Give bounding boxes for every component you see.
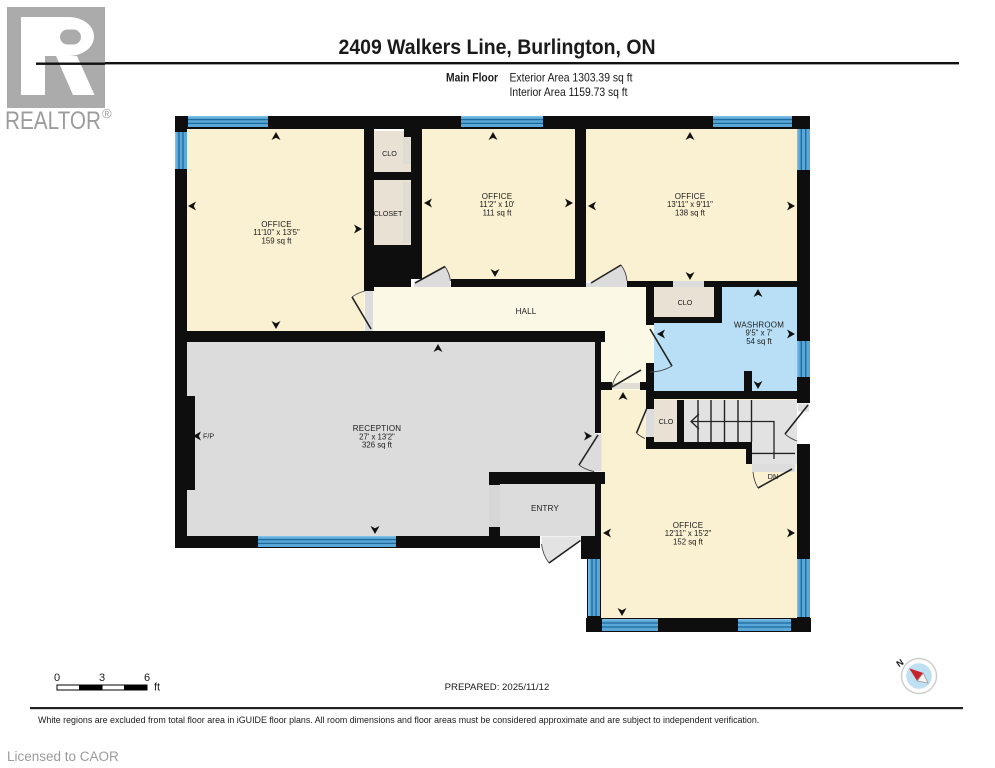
- svg-text:3: 3: [99, 672, 105, 684]
- svg-text:Exterior Area 1303.39 sq ft: Exterior Area 1303.39 sq ft: [510, 72, 634, 85]
- svg-text:Interior Area 1159.73 sq ft: Interior Area 1159.73 sq ft: [510, 86, 629, 99]
- svg-text:2409 Walkers Line, Burlington,: 2409 Walkers Line, Burlington, ON: [339, 36, 656, 59]
- svg-text:PREPARED: 2025/11/12: PREPARED: 2025/11/12: [445, 682, 550, 693]
- svg-text:HALL: HALL: [516, 307, 537, 316]
- svg-text:F/P: F/P: [203, 432, 214, 441]
- svg-text:ENTRY: ENTRY: [531, 504, 559, 513]
- svg-text:CLO: CLO: [659, 417, 674, 426]
- svg-text:54 sq ft: 54 sq ft: [746, 337, 772, 346]
- svg-text:138 sq ft: 138 sq ft: [675, 208, 706, 217]
- svg-text:0: 0: [54, 672, 60, 684]
- svg-text:152 sq ft: 152 sq ft: [673, 537, 704, 546]
- svg-text:®: ®: [102, 106, 112, 121]
- svg-text:Main Floor: Main Floor: [446, 72, 498, 85]
- svg-text:CLO: CLO: [382, 149, 397, 158]
- svg-text:CLO: CLO: [678, 298, 693, 307]
- svg-text:6: 6: [144, 672, 150, 684]
- svg-text:White regions are excluded fro: White regions are excluded from total fl…: [38, 715, 759, 725]
- svg-text:326 sq ft: 326 sq ft: [362, 441, 393, 450]
- svg-text:159 sq ft: 159 sq ft: [262, 236, 293, 245]
- svg-text:ft: ft: [154, 682, 160, 694]
- svg-text:Licensed to CAOR: Licensed to CAOR: [7, 749, 119, 764]
- svg-text:CLOSET: CLOSET: [374, 209, 403, 218]
- svg-text:111 sq ft: 111 sq ft: [483, 208, 513, 217]
- svg-text:DN: DN: [768, 472, 778, 481]
- svg-text:REALTOR: REALTOR: [5, 107, 101, 135]
